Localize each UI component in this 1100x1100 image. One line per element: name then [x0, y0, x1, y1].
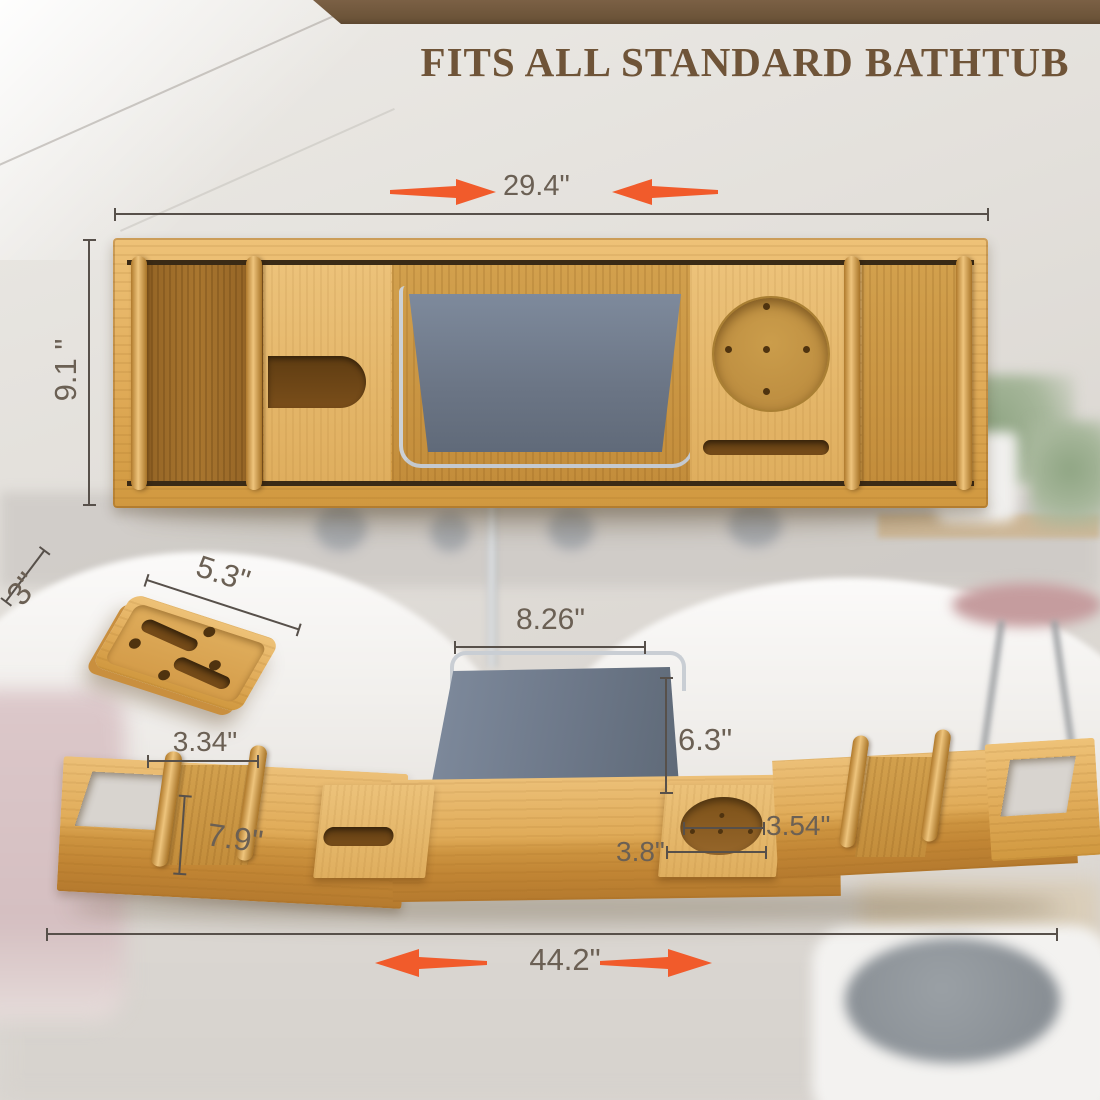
dim-label-left-tray-width: 7.9" — [205, 816, 265, 860]
dim-label-stand-width: 8.26" — [468, 603, 633, 637]
right-wing-panel — [862, 265, 956, 481]
stool-top-blur — [845, 938, 1060, 1063]
right-end-frame — [985, 738, 1100, 861]
plant-blur-2 — [1030, 420, 1100, 530]
drain-hole — [763, 388, 770, 395]
dim-label-closed-width: 29.4" — [503, 170, 570, 203]
right-wing-opening — [1001, 756, 1076, 817]
side-rail — [956, 256, 972, 490]
arrow-left-icon — [612, 178, 718, 206]
drain-hole — [803, 346, 810, 353]
phone-slot-block — [313, 785, 435, 878]
phone-slot-cutout-front — [322, 827, 394, 846]
left-wing-panel — [133, 265, 263, 481]
bathtub-caddy-top-view — [113, 238, 988, 508]
bathtub-caddy-extended-view — [40, 645, 1070, 945]
drain-hole — [763, 346, 770, 353]
dim-label-stand-height: 6.3" — [678, 722, 732, 758]
dim-label-cup-slot-width: 3.8" — [616, 836, 665, 868]
dim-label-depth: 9.1 " — [48, 320, 84, 420]
side-rail — [131, 256, 147, 490]
attic-ceiling-highlight — [0, 0, 420, 260]
dim-line-rail-spacing — [148, 760, 258, 762]
side-rail — [246, 256, 262, 490]
dim-line-cup-slot-width — [667, 851, 766, 853]
drain-hole — [725, 346, 732, 353]
arrow-right-icon — [390, 178, 496, 206]
dim-line-cup-width — [684, 827, 764, 829]
side-table-top-blur — [952, 583, 1100, 627]
dim-line-extended-width — [47, 933, 1057, 935]
dim-label-rail-spacing: 3.34" — [150, 726, 260, 758]
dim-label-cup-width: 3.54" — [766, 810, 830, 842]
cup-oval-recess — [678, 797, 765, 855]
arrow-right-icon — [600, 948, 712, 978]
product-infographic: FITS ALL STANDARD BATHTUB 29.4" 9.1 " — [0, 0, 1100, 1100]
dim-line-depth — [88, 240, 90, 505]
book-stand-fabric-top-view — [409, 294, 681, 452]
accessory-slot-cutout — [703, 440, 829, 455]
page-title: FITS ALL STANDARD BATHTUB — [400, 38, 1090, 86]
dim-line-closed-width — [115, 213, 988, 215]
dim-line-stand-width — [455, 646, 645, 648]
drain-hole — [763, 303, 770, 310]
phone-slot-cutout — [268, 356, 366, 408]
cup-recess — [712, 296, 830, 412]
dim-line-stand-height — [665, 678, 667, 793]
arrow-left-icon — [375, 948, 487, 978]
side-rail — [844, 256, 860, 490]
